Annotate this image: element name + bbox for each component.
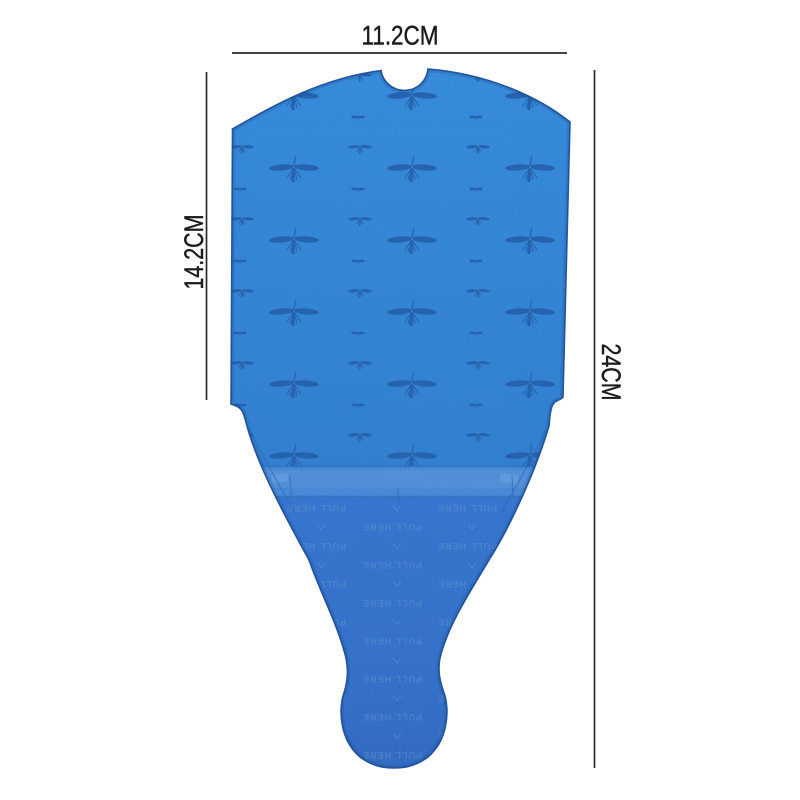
svg-text:11.2CM: 11.2CM <box>362 21 439 51</box>
svg-text:24CM: 24CM <box>596 344 626 401</box>
svg-text:14.2CM: 14.2CM <box>179 215 209 290</box>
